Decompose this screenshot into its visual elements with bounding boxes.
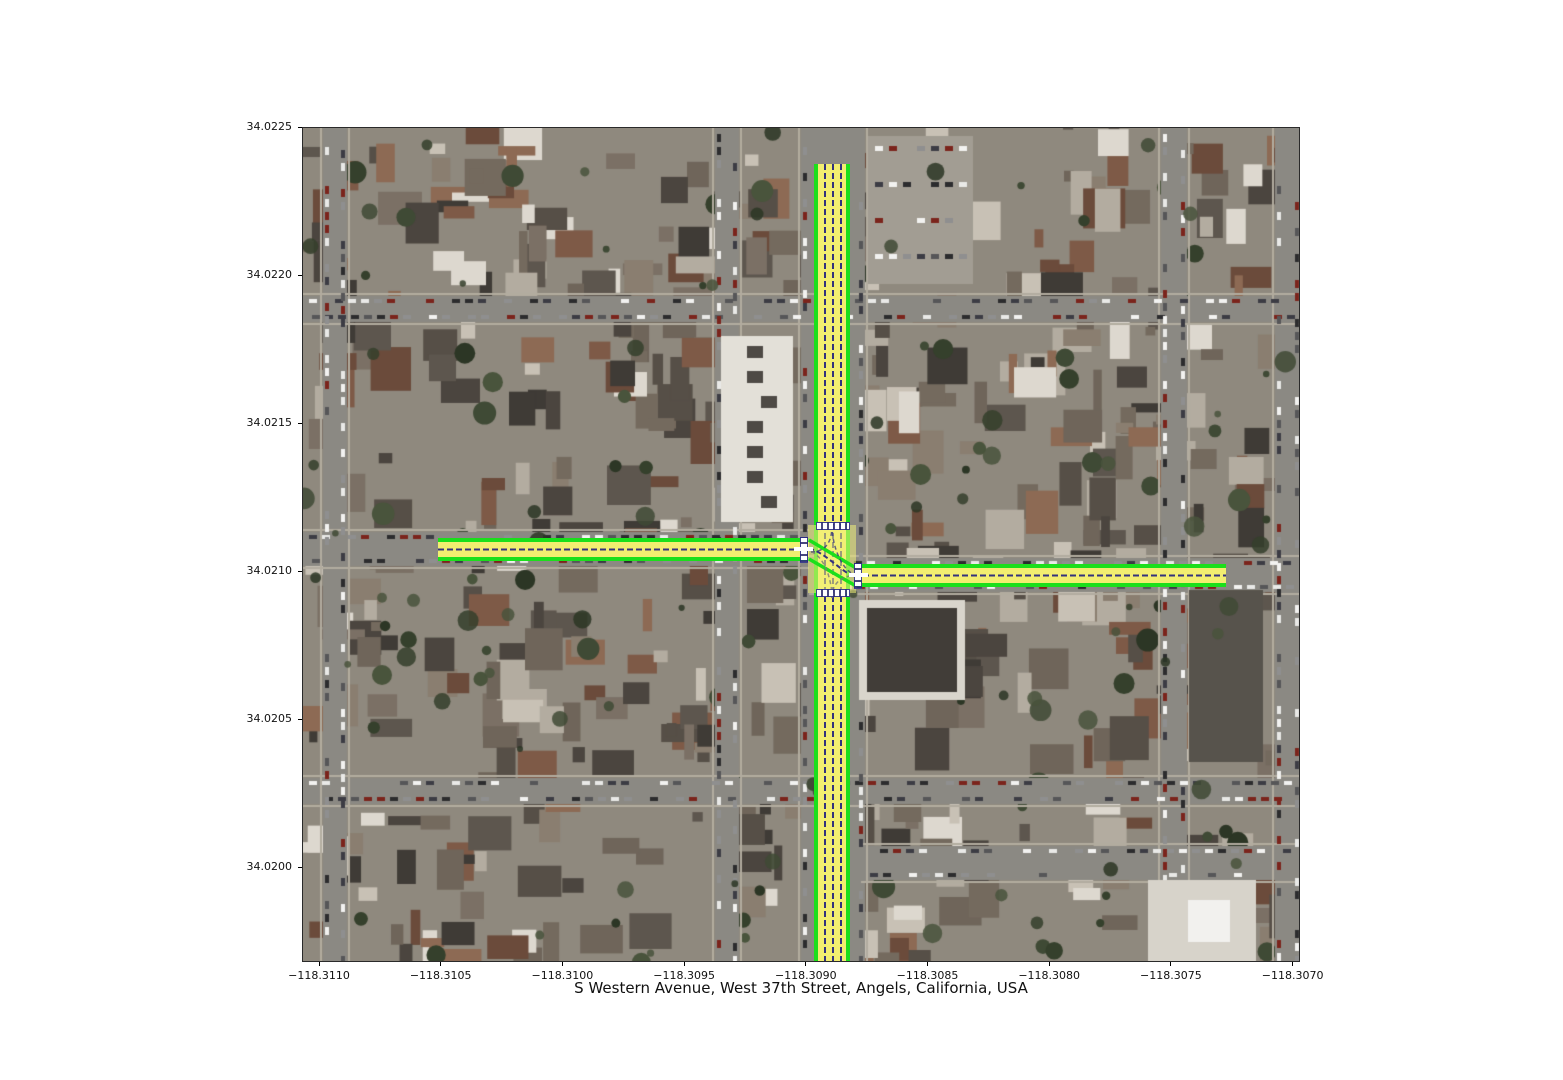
y-tick-label: 34.0205	[247, 712, 293, 725]
x-tick-mark	[805, 962, 806, 966]
y-tick-mark	[298, 719, 302, 720]
x-tick-mark	[562, 962, 563, 966]
x-tick-label: −118.3100	[532, 969, 594, 982]
stop-bar-east	[849, 573, 868, 577]
stop-line-south	[816, 589, 850, 597]
x-tick-label: −118.3110	[288, 969, 350, 982]
x-tick-mark	[684, 962, 685, 966]
x-tick-mark	[1292, 962, 1293, 966]
y-tick-mark	[298, 275, 302, 276]
x-tick-label: −118.3070	[1262, 969, 1324, 982]
x-tick-label: −118.3095	[653, 969, 715, 982]
x-tick-label: −118.3080	[1018, 969, 1080, 982]
x-tick-mark	[1049, 962, 1050, 966]
y-tick-mark	[298, 867, 302, 868]
stop-bar-west	[794, 547, 813, 551]
y-tick-mark	[298, 571, 302, 572]
x-tick-mark	[319, 962, 320, 966]
y-tick-label: 34.0220	[247, 268, 293, 281]
road-overlay-37th-east	[854, 564, 1226, 587]
stop-line-north	[816, 522, 850, 530]
satellite-map	[302, 127, 1300, 962]
x-tick-mark	[1170, 962, 1171, 966]
y-tick-label: 34.0210	[247, 564, 293, 577]
x-tick-label: −118.3090	[775, 969, 837, 982]
x-tick-label: −118.3105	[410, 969, 472, 982]
y-tick-mark	[298, 423, 302, 424]
x-tick-mark	[440, 962, 441, 966]
map-figure: S Western Avenue, West 37th Street, Ange…	[0, 0, 1563, 1080]
y-tick-label: 34.0200	[247, 860, 293, 873]
y-tick-label: 34.0215	[247, 416, 293, 429]
y-tick-mark	[298, 127, 302, 128]
x-tick-label: −118.3085	[897, 969, 959, 982]
x-tick-mark	[927, 962, 928, 966]
y-tick-label: 34.0225	[247, 120, 293, 133]
x-tick-label: −118.3075	[1140, 969, 1202, 982]
road-overlay-37th-west	[438, 538, 809, 561]
